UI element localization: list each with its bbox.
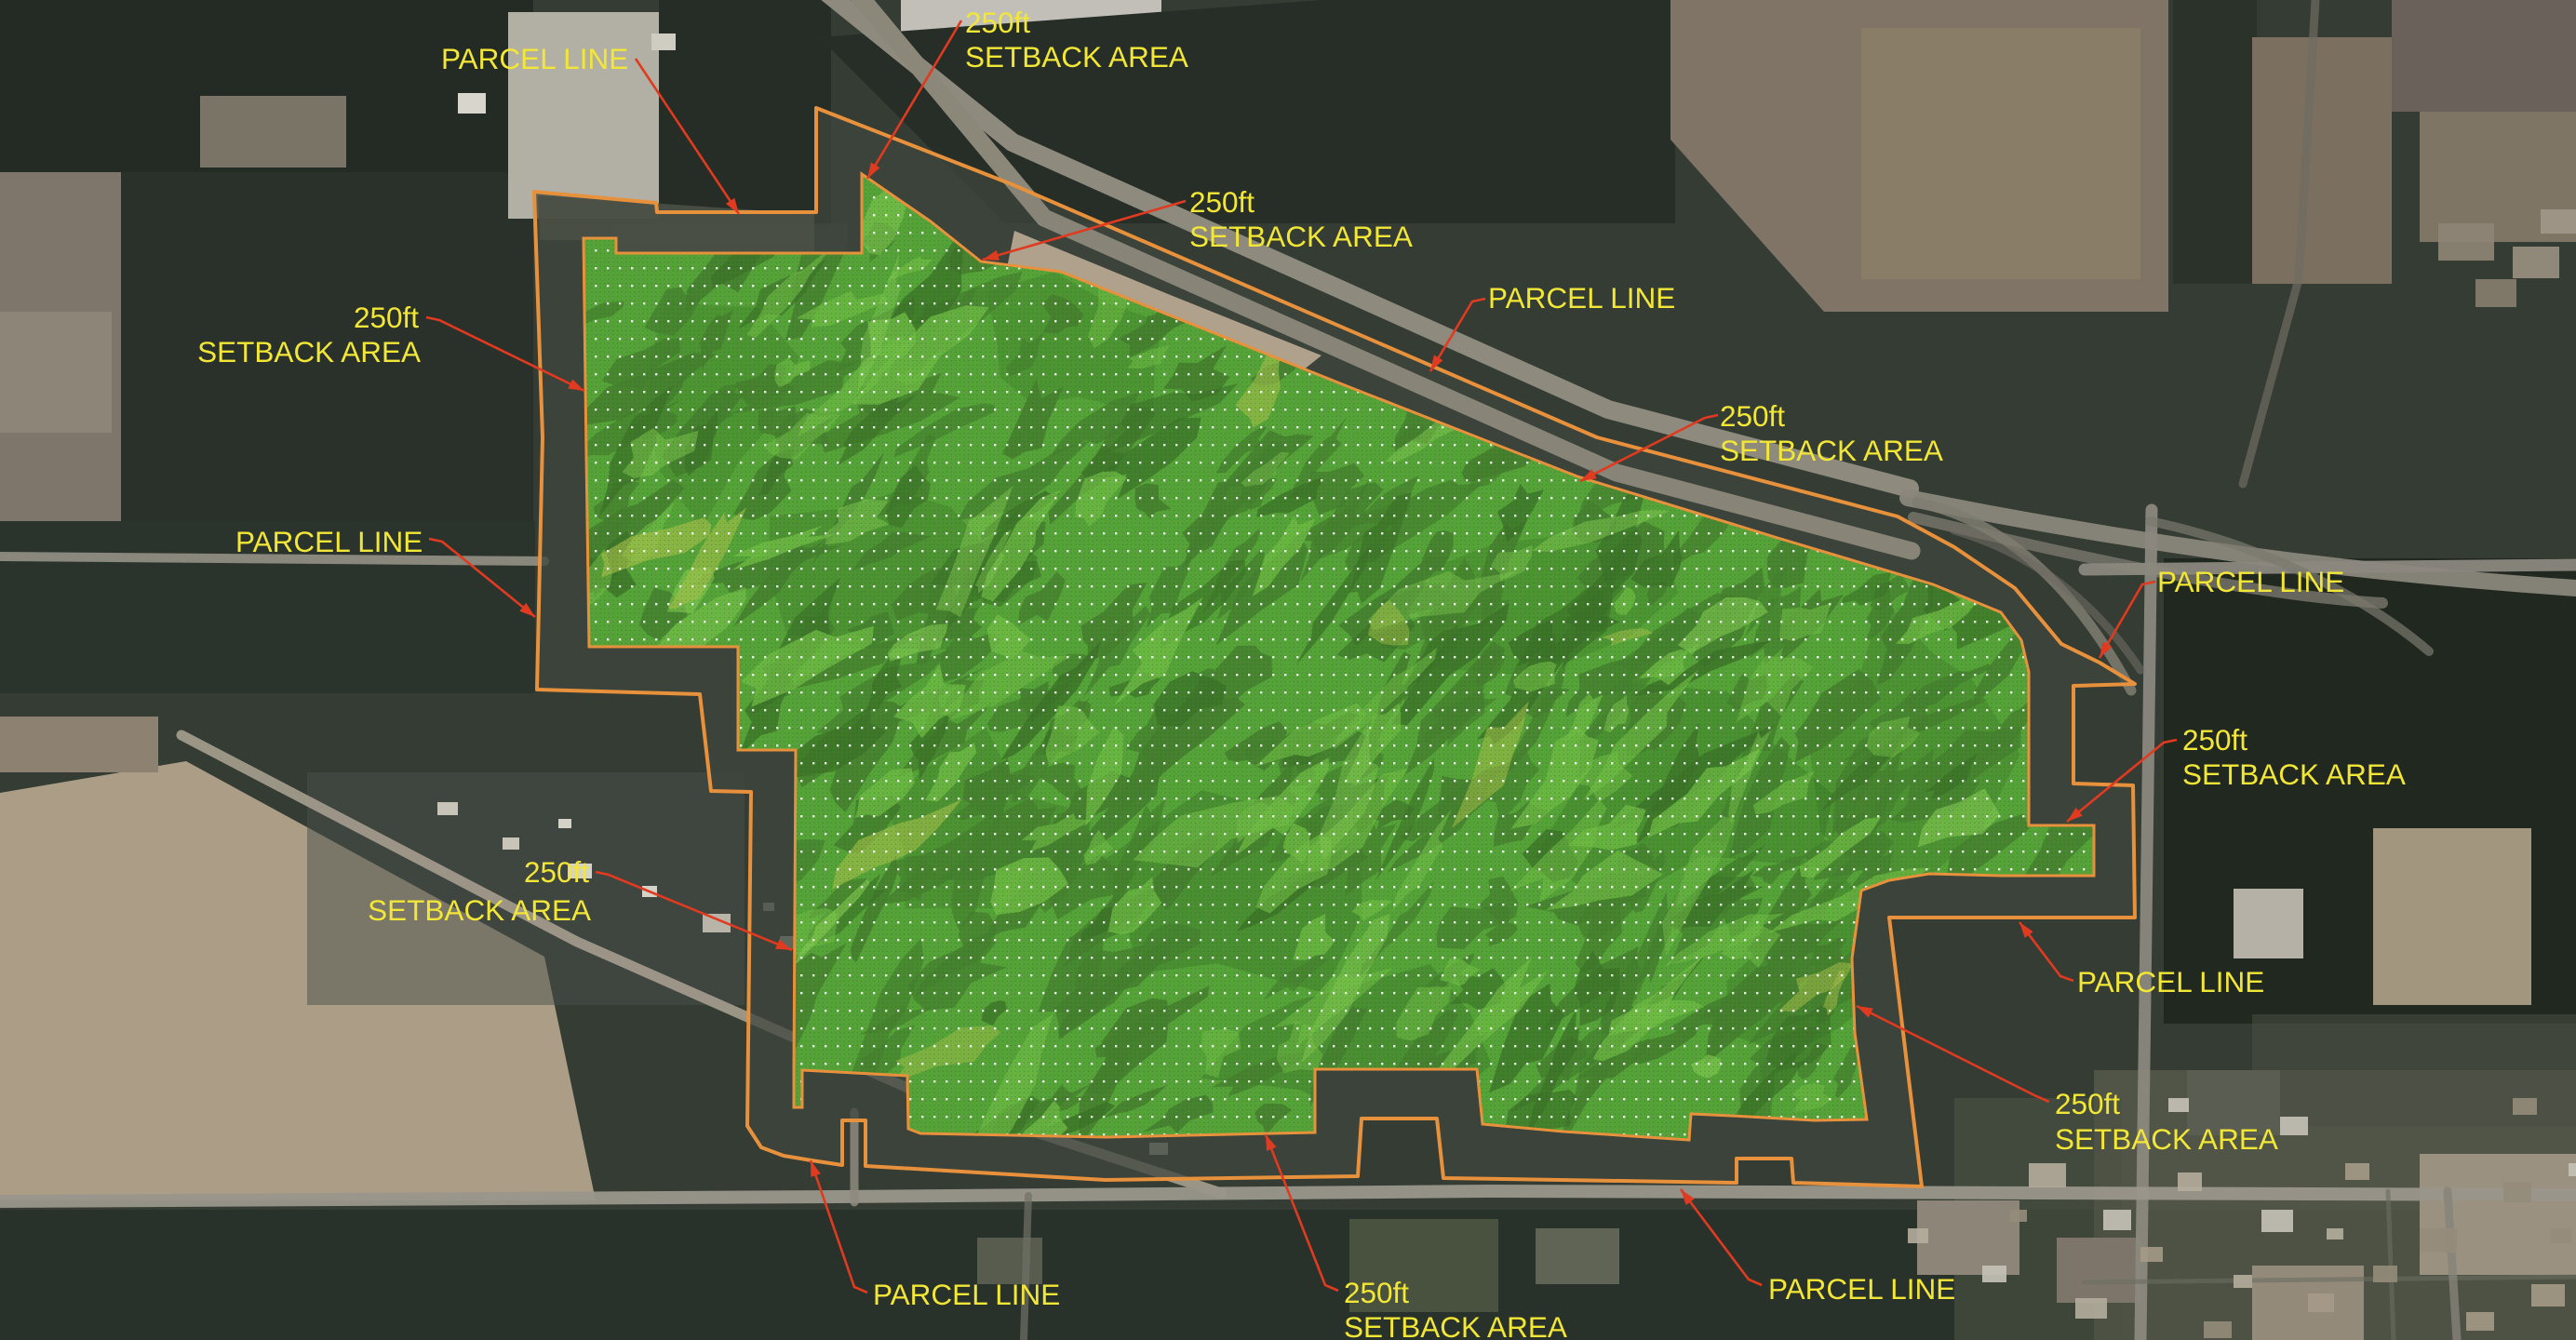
svg-text:PARCEL LINE: PARCEL LINE — [873, 1278, 1060, 1311]
svg-text:PARCEL LINE: PARCEL LINE — [2077, 965, 2264, 998]
svg-text:250ft: 250ft — [1344, 1276, 1409, 1309]
svg-text:250ft: 250ft — [1189, 185, 1254, 219]
svg-text:250ft: 250ft — [1720, 399, 1785, 433]
svg-text:PARCEL LINE: PARCEL LINE — [235, 525, 423, 558]
svg-text:250ft: 250ft — [354, 301, 419, 334]
svg-text:SETBACK AREA: SETBACK AREA — [1344, 1310, 1567, 1340]
svg-text:250ft: 250ft — [2055, 1087, 2120, 1120]
svg-text:SETBACK AREA: SETBACK AREA — [197, 335, 421, 368]
svg-text:SETBACK AREA: SETBACK AREA — [965, 40, 1188, 74]
svg-text:SETBACK AREA: SETBACK AREA — [1189, 220, 1413, 253]
svg-text:PARCEL LINE: PARCEL LINE — [1488, 281, 1675, 315]
svg-text:SETBACK AREA: SETBACK AREA — [368, 893, 591, 927]
svg-text:PARCEL LINE: PARCEL LINE — [2157, 565, 2344, 598]
svg-text:SETBACK AREA: SETBACK AREA — [2055, 1122, 2278, 1156]
svg-text:PARCEL LINE: PARCEL LINE — [441, 42, 628, 75]
svg-text:250ft: 250ft — [2182, 723, 2247, 757]
svg-text:SETBACK AREA: SETBACK AREA — [2182, 757, 2406, 791]
svg-text:PARCEL LINE: PARCEL LINE — [1768, 1272, 1955, 1306]
svg-text:250ft: 250ft — [524, 855, 589, 889]
svg-text:250ft: 250ft — [965, 6, 1030, 39]
svg-text:SETBACK AREA: SETBACK AREA — [1720, 434, 1943, 467]
